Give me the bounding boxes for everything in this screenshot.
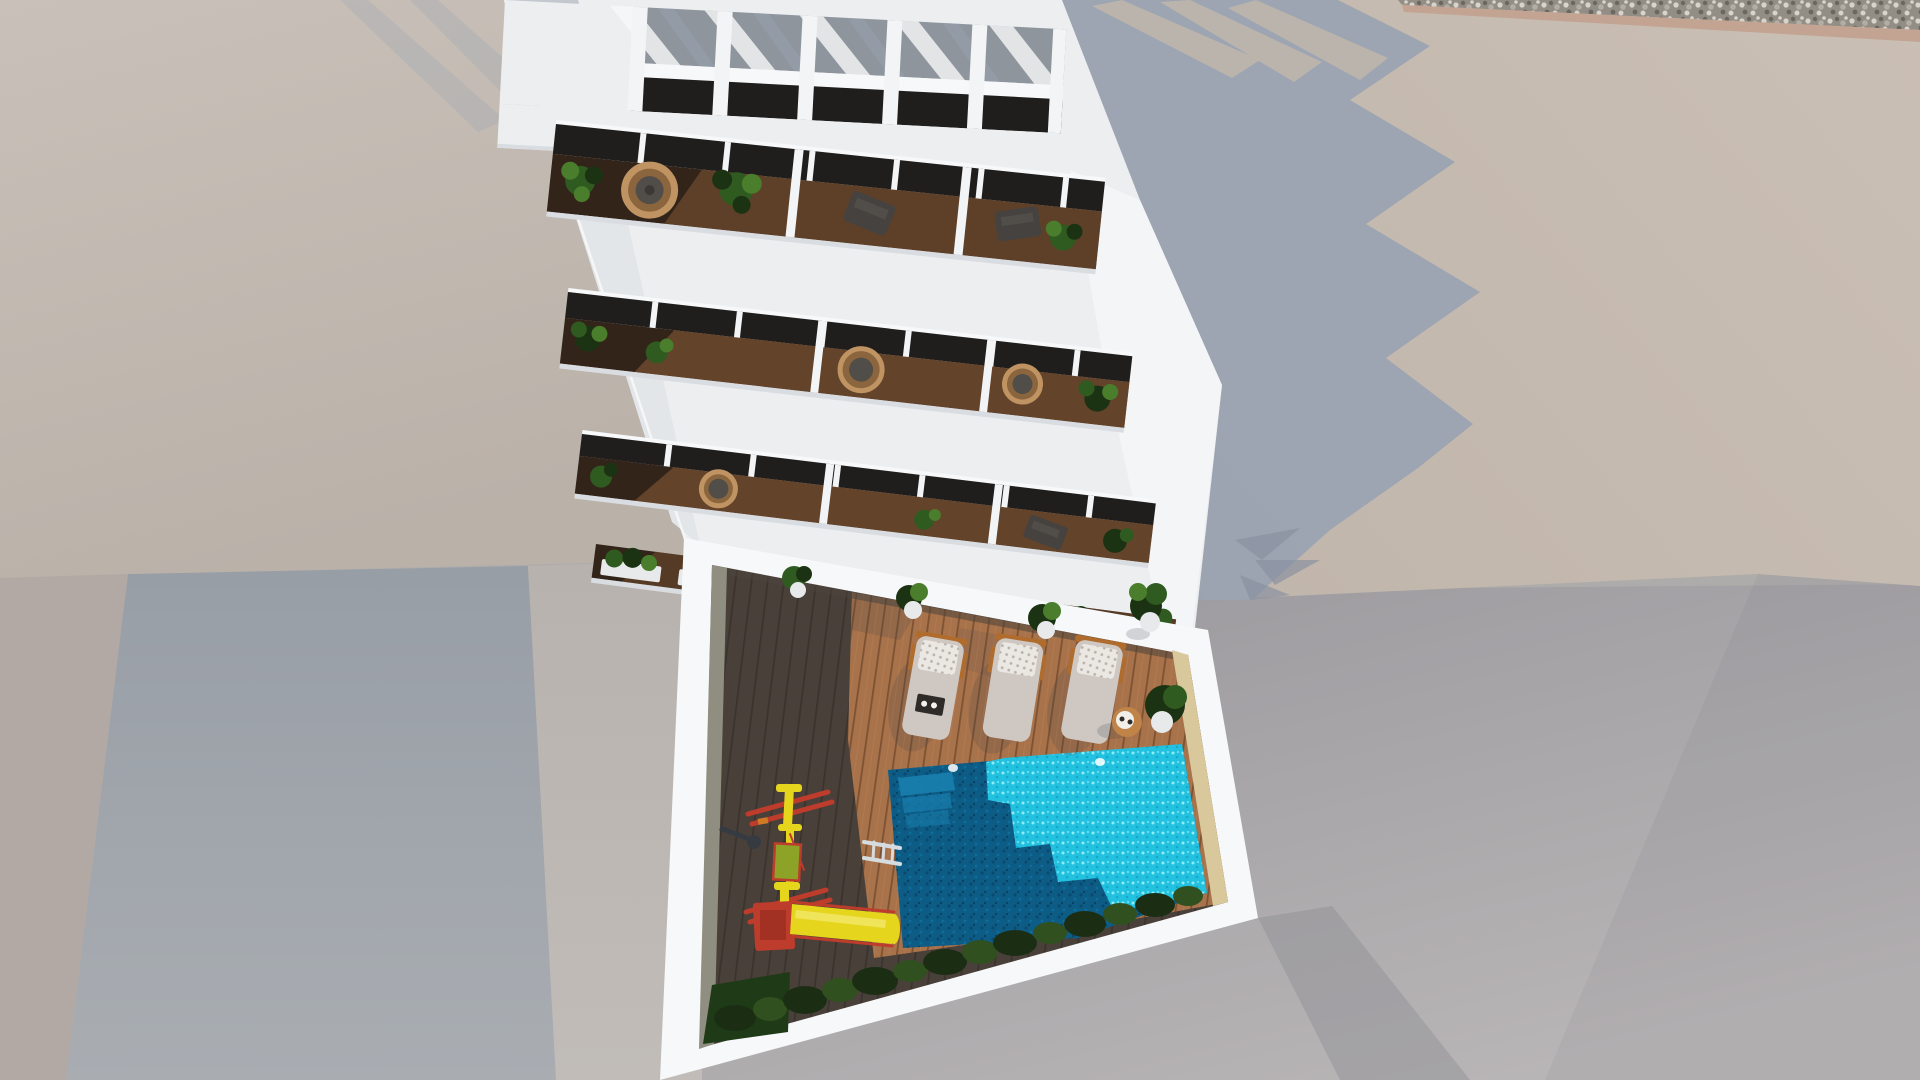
- deck-plant: [910, 583, 928, 601]
- deck-plant-pot: [904, 601, 922, 619]
- hedge-bush: [852, 967, 898, 995]
- render-canvas: Aerial 3D architectural render: white ap…: [0, 0, 1920, 1080]
- table-glass: [1128, 720, 1133, 725]
- deck-plant: [1163, 685, 1187, 709]
- slide-platform-inner: [760, 910, 786, 940]
- ladder-rung: [873, 842, 874, 859]
- hedge-bush: [1103, 903, 1137, 925]
- deck-plant-pot: [1037, 621, 1055, 639]
- hedge-bush: [1064, 911, 1106, 937]
- deck-plant-pot: [1151, 711, 1173, 733]
- hedge-bush: [1173, 886, 1203, 906]
- hedge-bush: [753, 997, 787, 1021]
- deck-plant: [796, 566, 812, 582]
- hedge-bush: [962, 940, 998, 964]
- left-shaded-wall: [66, 566, 556, 1080]
- lounge-chair: [994, 206, 1042, 242]
- deck-plant-pot: [790, 582, 806, 598]
- lounger-pillow: [997, 642, 1039, 678]
- deck-plant-pot: [1140, 612, 1160, 632]
- hedge-bush: [783, 986, 827, 1014]
- hedge-bush: [1135, 893, 1175, 917]
- deck-plant: [1043, 602, 1061, 620]
- hedge-bush: [1033, 922, 1067, 944]
- table-glass: [1120, 717, 1125, 722]
- slide-exit: [888, 914, 900, 944]
- play-mat: [773, 843, 801, 880]
- hedge-bush: [923, 949, 967, 975]
- deck-plant: [1129, 583, 1147, 601]
- hedge-bush: [714, 1005, 756, 1031]
- hedge-bush: [893, 960, 927, 982]
- pool-shower-head: [747, 835, 761, 849]
- lounge-chair-frame: [994, 206, 1042, 242]
- pool-light: [1095, 758, 1105, 766]
- ladder-rung: [892, 845, 893, 862]
- ladder-rung: [883, 844, 884, 861]
- pool-light: [948, 764, 958, 772]
- deck-plant: [1145, 583, 1167, 605]
- aerial-building-render: Aerial 3D architectural render: white ap…: [0, 0, 1920, 1080]
- hedge-bush: [993, 930, 1037, 956]
- swing-cap: [776, 784, 802, 792]
- swing-cap: [778, 824, 802, 831]
- pergola-left-wall: [500, 0, 635, 111]
- slide-cap: [774, 882, 800, 890]
